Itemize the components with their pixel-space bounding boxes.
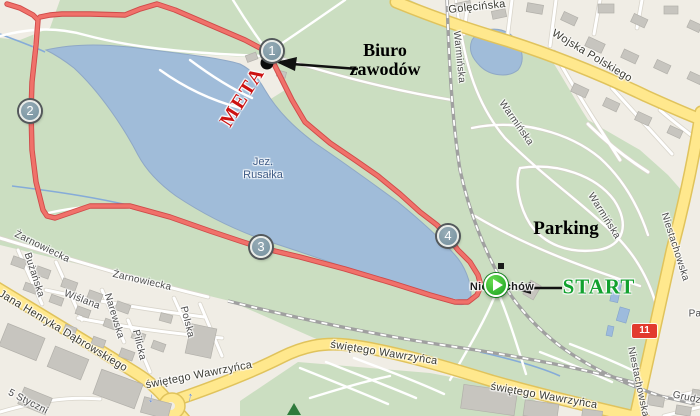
start-marker[interactable]: [484, 273, 508, 297]
checkpoint-4-marker[interactable]: 4: [437, 225, 459, 247]
small-building-icon: [498, 263, 504, 269]
lake-name-label: Jez. Rusałka: [243, 156, 283, 182]
checkpoint-3-marker[interactable]: 3: [250, 236, 272, 258]
play-icon: [493, 279, 503, 291]
map-canvas[interactable]: Golęcińska Wojska Polskiego Warmińska Wa…: [0, 0, 700, 416]
one-way-down-icon: ↓: [147, 390, 156, 406]
race-office-annotation: Biuro zawodów: [350, 41, 421, 79]
checkpoint-2-marker[interactable]: 2: [19, 100, 41, 122]
route-11-badge: 11: [632, 324, 657, 338]
one-way-up-icon: ↑: [186, 389, 195, 405]
checkpoint-1-marker[interactable]: 1: [261, 40, 283, 62]
street-label-pa: Pa: [689, 309, 700, 320]
start-annotation: START: [563, 275, 636, 300]
parking-annotation: Parking: [533, 218, 598, 240]
